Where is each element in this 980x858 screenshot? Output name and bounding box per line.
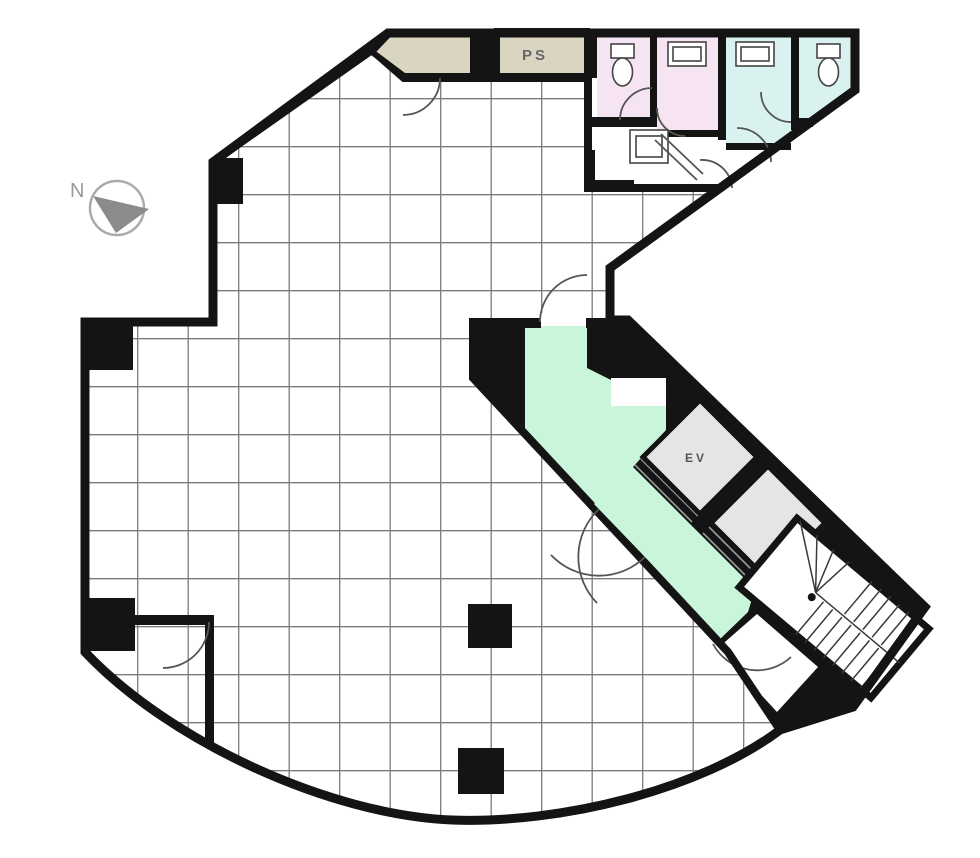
elevator-label: EV bbox=[685, 451, 707, 465]
toilet-wall-1 bbox=[650, 33, 657, 127]
column bbox=[85, 598, 135, 651]
ps-label: PS bbox=[522, 47, 548, 64]
floor-plan: EV bbox=[0, 0, 980, 858]
floor-grid bbox=[0, 0, 980, 858]
toilet-wall-2 bbox=[718, 33, 726, 140]
anteroom-wall-h bbox=[586, 180, 634, 190]
floor-plan-page: EV bbox=[0, 0, 980, 858]
hall-door-opening-floor bbox=[541, 326, 586, 333]
column bbox=[458, 748, 504, 794]
toilet-wall-3 bbox=[791, 33, 799, 130]
toilet-fixture-2 bbox=[817, 44, 840, 86]
core-wall-niche bbox=[611, 378, 666, 406]
sink-counter-2 bbox=[736, 42, 774, 66]
north-label: N bbox=[70, 180, 84, 202]
sink-counter-1 bbox=[668, 42, 706, 66]
toilet-fixture-1 bbox=[611, 44, 634, 86]
column bbox=[468, 604, 512, 648]
compass-needle-icon bbox=[93, 196, 149, 233]
column bbox=[85, 322, 133, 370]
toilet-wall-bottom-1 bbox=[588, 117, 657, 127]
north-indicator: N bbox=[70, 180, 149, 235]
closet-wall-h bbox=[133, 615, 214, 625]
